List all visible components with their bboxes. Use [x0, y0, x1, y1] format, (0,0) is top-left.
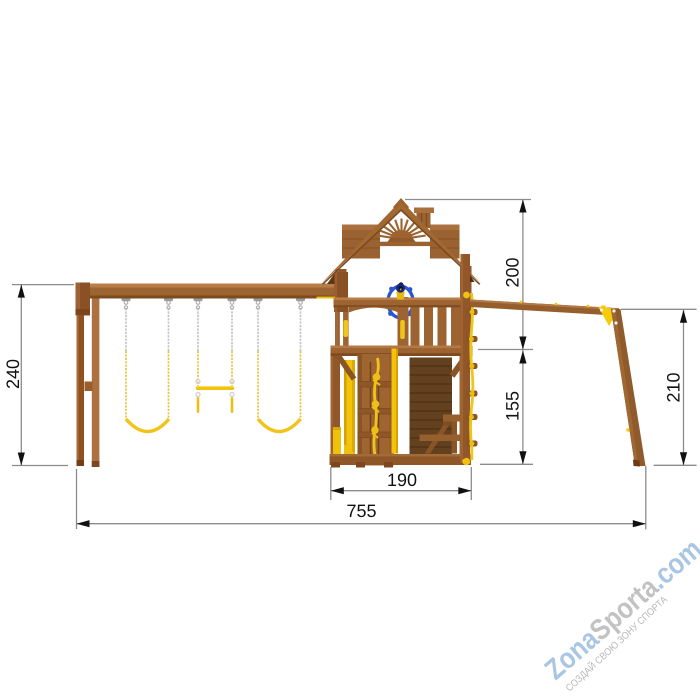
svg-text:240: 240 — [3, 359, 23, 389]
svg-text:190: 190 — [387, 470, 417, 490]
svg-text:155: 155 — [502, 391, 522, 421]
svg-text:755: 755 — [346, 501, 376, 521]
svg-text:200: 200 — [502, 257, 522, 287]
svg-text:210: 210 — [663, 372, 683, 402]
